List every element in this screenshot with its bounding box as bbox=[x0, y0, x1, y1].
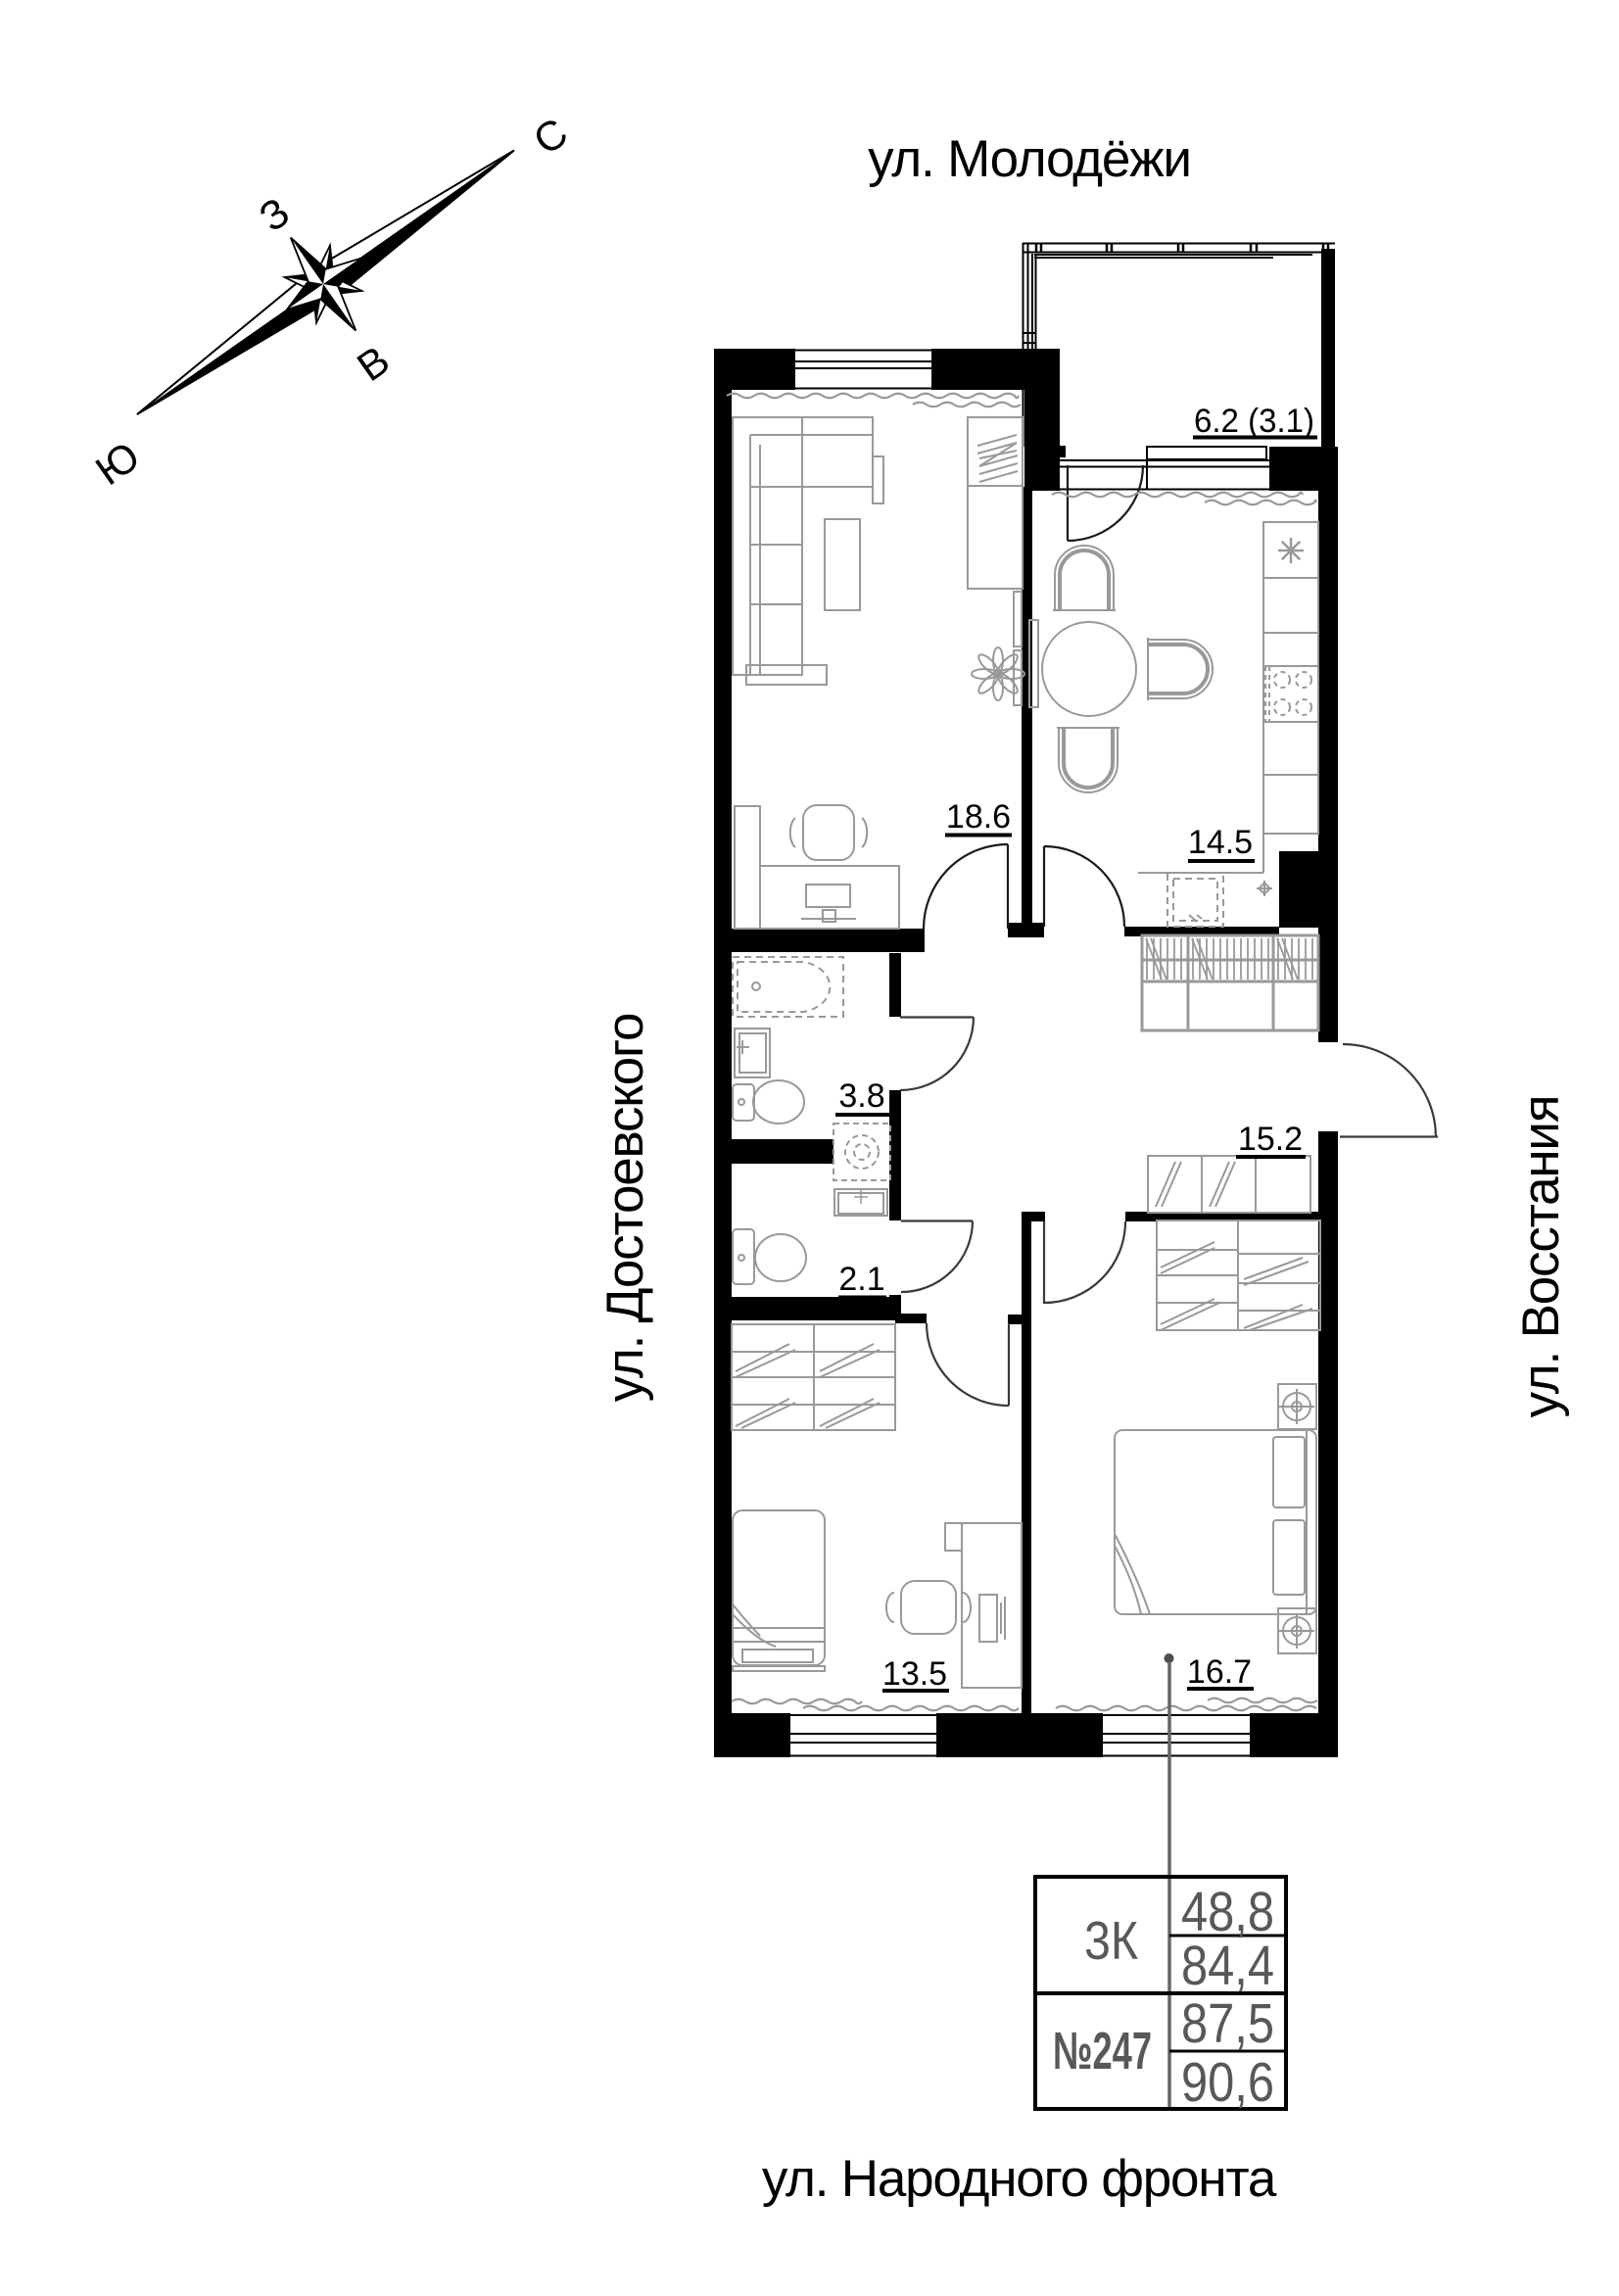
svg-text:13.5: 13.5 bbox=[882, 1655, 947, 1693]
svg-text:6.2 (3.1): 6.2 (3.1) bbox=[1194, 403, 1314, 440]
svg-text:84,4: 84,4 bbox=[1181, 1935, 1274, 1997]
svg-text:ул. Народного фронта: ул. Народного фронта bbox=[762, 2150, 1277, 2208]
svg-text:№247: №247 bbox=[1053, 2022, 1152, 2081]
svg-text:2.1: 2.1 bbox=[838, 1261, 884, 1298]
svg-text:3К: 3К bbox=[1084, 1910, 1138, 1971]
svg-text:14.5: 14.5 bbox=[1188, 824, 1253, 861]
svg-text:ул. Молодёжи: ул. Молодёжи bbox=[868, 130, 1191, 188]
svg-text:3.8: 3.8 bbox=[838, 1077, 884, 1115]
svg-text:87,5: 87,5 bbox=[1181, 1992, 1274, 2055]
svg-text:15.2: 15.2 bbox=[1238, 1121, 1303, 1158]
svg-text:ул. Восстания: ул. Восстания bbox=[1512, 1096, 1570, 1418]
svg-text:18.6: 18.6 bbox=[946, 798, 1011, 836]
svg-text:90,6: 90,6 bbox=[1181, 2051, 1274, 2114]
svg-text:ул. Достоевского: ул. Достоевского bbox=[596, 1014, 654, 1403]
svg-text:16.7: 16.7 bbox=[1187, 1653, 1252, 1691]
